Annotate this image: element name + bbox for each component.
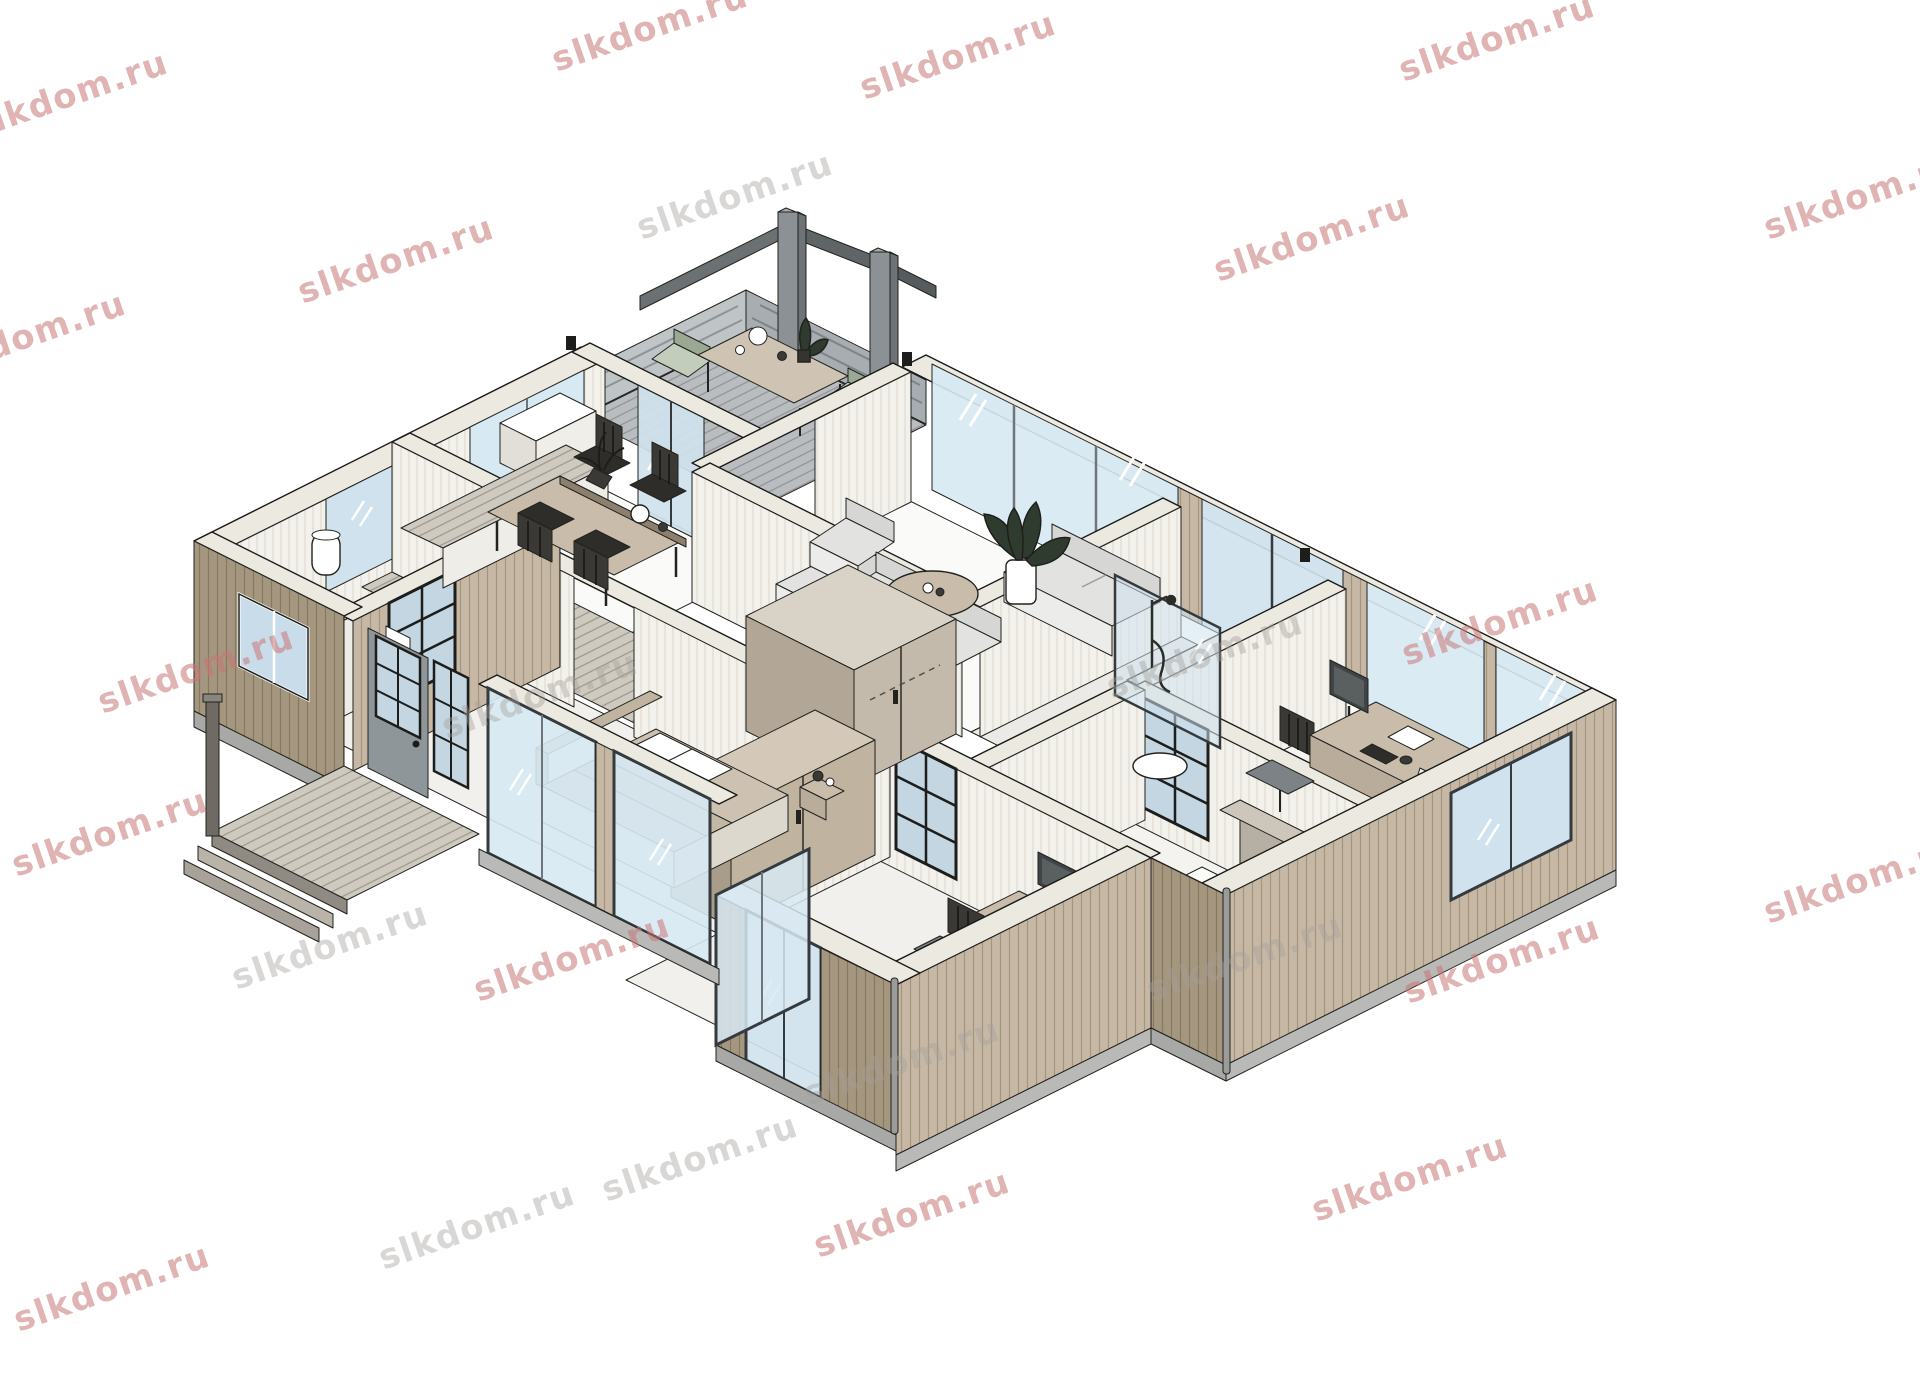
screenshot-root: { "app": { "type": "isometric-3d-floor-p… <box>0 0 1920 1400</box>
house-isometric-render <box>0 0 1920 1400</box>
wall-marker <box>1300 548 1310 562</box>
shower-tray <box>1133 753 1187 779</box>
water-heater <box>312 530 340 575</box>
teapot <box>749 327 767 345</box>
wall-marker <box>902 352 912 366</box>
cup <box>778 352 787 361</box>
cup <box>659 523 668 532</box>
porch-post <box>203 694 222 836</box>
teapot <box>631 505 649 523</box>
front-door <box>368 628 428 798</box>
downpipe <box>1223 888 1230 1074</box>
mouse <box>1400 756 1412 764</box>
cup <box>736 346 745 355</box>
glass-pier <box>1178 487 1202 625</box>
door-sidelight <box>434 661 468 788</box>
downpipe <box>891 978 898 1134</box>
wall-marker <box>566 336 576 350</box>
